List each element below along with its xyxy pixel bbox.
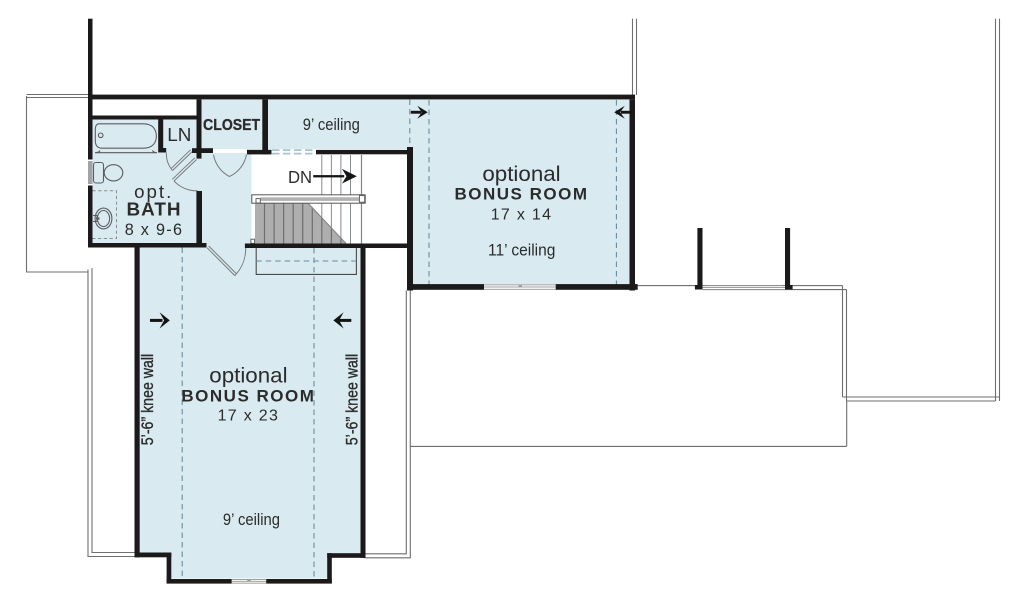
svg-text:5’-6” knee wall: 5’-6” knee wall [139,354,157,445]
svg-text:CLOSET: CLOSET [203,116,261,134]
svg-text:9’ ceiling: 9’ ceiling [223,511,280,529]
svg-text:BATH: BATH [126,200,181,221]
svg-text:DN: DN [288,168,312,187]
svg-text:optional: optional [209,363,287,388]
svg-text:11’ ceiling: 11’ ceiling [488,242,555,259]
svg-text:BONUS ROOM: BONUS ROOM [455,184,589,203]
svg-text:5’-6” knee wall: 5’-6” knee wall [343,354,361,445]
svg-text:8 x 9-6: 8 x 9-6 [125,221,184,239]
svg-text:17 x 14: 17 x 14 [491,207,553,224]
svg-text:optional: optional [482,161,560,186]
svg-text:9’ ceiling: 9’ ceiling [303,116,360,134]
svg-text:17 x 23: 17 x 23 [218,408,280,425]
svg-text:BONUS ROOM: BONUS ROOM [181,386,315,405]
svg-text:LN: LN [167,124,191,145]
